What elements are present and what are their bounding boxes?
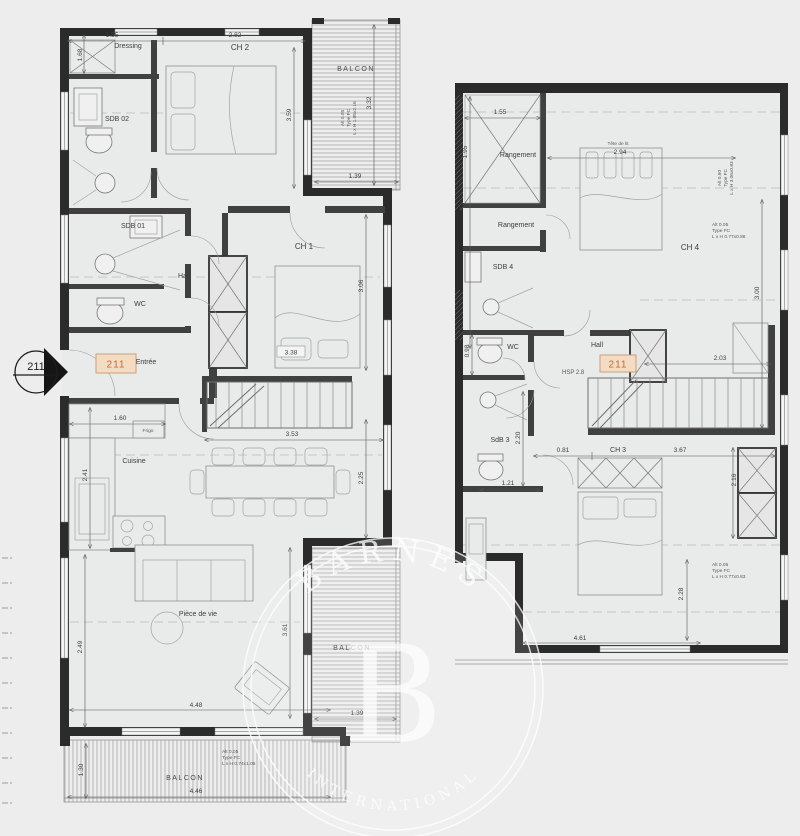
room-label-cuisine: Cuisine [122,458,145,465]
watermark-monogram: B [343,617,442,774]
dim-f1-top-left: 1.55 [106,32,119,39]
floor-plan-sheet: 1.55 2.82 Dressing CH 2 1.68 SDB 02 3.59… [0,0,800,836]
room-label-balcon-bottom: BALCON [166,775,204,782]
edge-ticks [2,558,14,803]
dim-f1-balcon-top-height: 3.32 [366,96,373,109]
dim-f2-ch3-width: 3.67 [674,447,687,454]
room-label-balcon-top: BALCON [337,66,375,73]
note-f2-ch3-window-l3: L x H 0.77x0.83 [712,574,746,580]
dim-f1-sejour-left: 2.49 [77,640,84,653]
note-f1-balcon-bottom-l2: Type FC [222,755,241,761]
dim-f1-top-right: 2.82 [229,32,242,39]
dim-f1-ch1-bed: 3.38 [285,350,298,357]
note-f2-ch4-window-l3: L x H 0.77x0.88 [712,234,746,240]
note-f2-ch3-window-l1: Alt 0.05 [712,562,729,568]
room-label-ch4: CH 4 [681,243,700,252]
dim-f2-ch3-bottom: 4.61 [574,635,587,642]
room-label-sdb4: SDB 4 [493,264,513,271]
label-tete-de-lit: Tête de lit [607,141,629,147]
room-label-hall-f2: Hall [591,342,604,349]
room-label-wc-f2: WC [507,344,519,351]
dim-f1-left-top: 1.68 [77,48,84,61]
room-label-wc-f1: WC [134,301,146,308]
dim-f1-stairs-width: 3.53 [286,431,299,438]
note-f2-ch4-window-l1: Alt 0.05 [712,222,729,228]
dim-f2-bed-width: 2.94 [614,149,627,156]
floor1-duct-column [209,256,247,368]
entrance-label: 211 [27,361,45,373]
floor2-wc-fixtures [477,338,502,363]
floor-plan-drawing: 1.55 2.82 Dressing CH 2 1.68 SDB 02 3.59… [0,0,800,836]
floor1-ch2-bed [166,66,276,154]
dim-f2-closet-height: 2.16 [731,473,738,486]
note-f1-balcon-bottom-l3: L x H 0.74x1.05 [222,761,256,767]
dim-f2-ch4-height: 3.00 [754,286,761,299]
note-f2-ch3-window-l2: Type FC [712,568,731,574]
room-label-entree: Entrée [136,359,157,366]
dim-f2-hall-width: 2.03 [714,355,727,362]
dim-f1-balcon-top-width: 1.39 [349,173,362,180]
dim-f1-sejour-width: 4.48 [190,702,203,709]
label-hsp: HSP 2.8 [562,370,585,376]
dim-f2-left-height: 1.95 [462,145,469,158]
room-label-hall-f1: Hall [178,273,191,280]
dim-f1-cuisine-width: 1.60 [114,415,127,422]
note-f2-ch4-right-l2: Type FC [723,168,729,187]
room-label-rangement2: Rangement [498,222,534,229]
dim-f2-sdb3-height: 2.20 [515,431,522,444]
note-f1-balcon-top-l1: Alt 0.05 [340,110,346,127]
dim-f1-ch1-height: 3.06 [358,279,365,292]
room-label-sdb3: SdB 3 [490,437,509,444]
dim-f2-stair-start: 0.81 [557,447,570,454]
unit-tag-f1: 211 [107,360,126,371]
note-f2-ch4-right-l3: L x H 3.06x0.83 [729,161,735,195]
room-label-dressing: Dressing [114,43,142,50]
room-label-sdb02: SDB 02 [105,116,129,123]
dim-f2-window-height: 2.28 [678,587,685,600]
room-label-ch2: CH 2 [231,43,250,52]
note-f2-ch4-window-l2: Type FC [712,228,731,234]
entrance-marker: 211 [13,348,68,396]
dim-f1-balcon-bottom-height: 1.30 [78,763,85,776]
dim-f1-balcon-bottom-width: 4.46 [190,788,203,795]
floor2-plan: 1.55 1.95 Rangement Rangement SDB 4 Tête… [455,83,788,664]
dim-f1-ch2-height: 3.59 [286,108,293,121]
note-f1-balcon-top-l3: L x H 1.05x2.16 [352,101,358,135]
room-label-ch1: CH 1 [295,242,314,251]
floor2-ch3-closet [738,448,776,538]
dim-f2-top-left: 1.55 [494,109,507,116]
note-f1-balcon-bottom-l1: Alt 0.05 [222,749,239,755]
unit-tag-f2: 211 [609,360,628,371]
room-label-ch3: CH 3 [610,447,626,454]
dim-f2-wc-height: 0.98 [464,344,471,357]
note-f1-balcon-top-l2: Type FC [346,108,352,127]
floor1-wc-fixtures [97,298,124,324]
room-label-rangement1: Rangement [500,152,536,159]
dim-f1-dining-height: 2.25 [358,471,365,484]
floor2-ch4-bed [580,148,662,250]
dim-f1-cuisine-height: 2.41 [82,468,89,481]
label-frigo: Frigo [143,428,154,434]
dim-f2-sdb3-width: 1.21 [502,480,515,487]
floor2-bench [733,323,768,373]
floor2-ch3-bed [578,458,662,595]
room-label-piece-de-vie: Pièce de vie [179,611,217,618]
room-label-sdb01: SDB 01 [121,223,145,230]
note-f2-ch4-right-l1: Alt 0.90 [717,170,723,187]
